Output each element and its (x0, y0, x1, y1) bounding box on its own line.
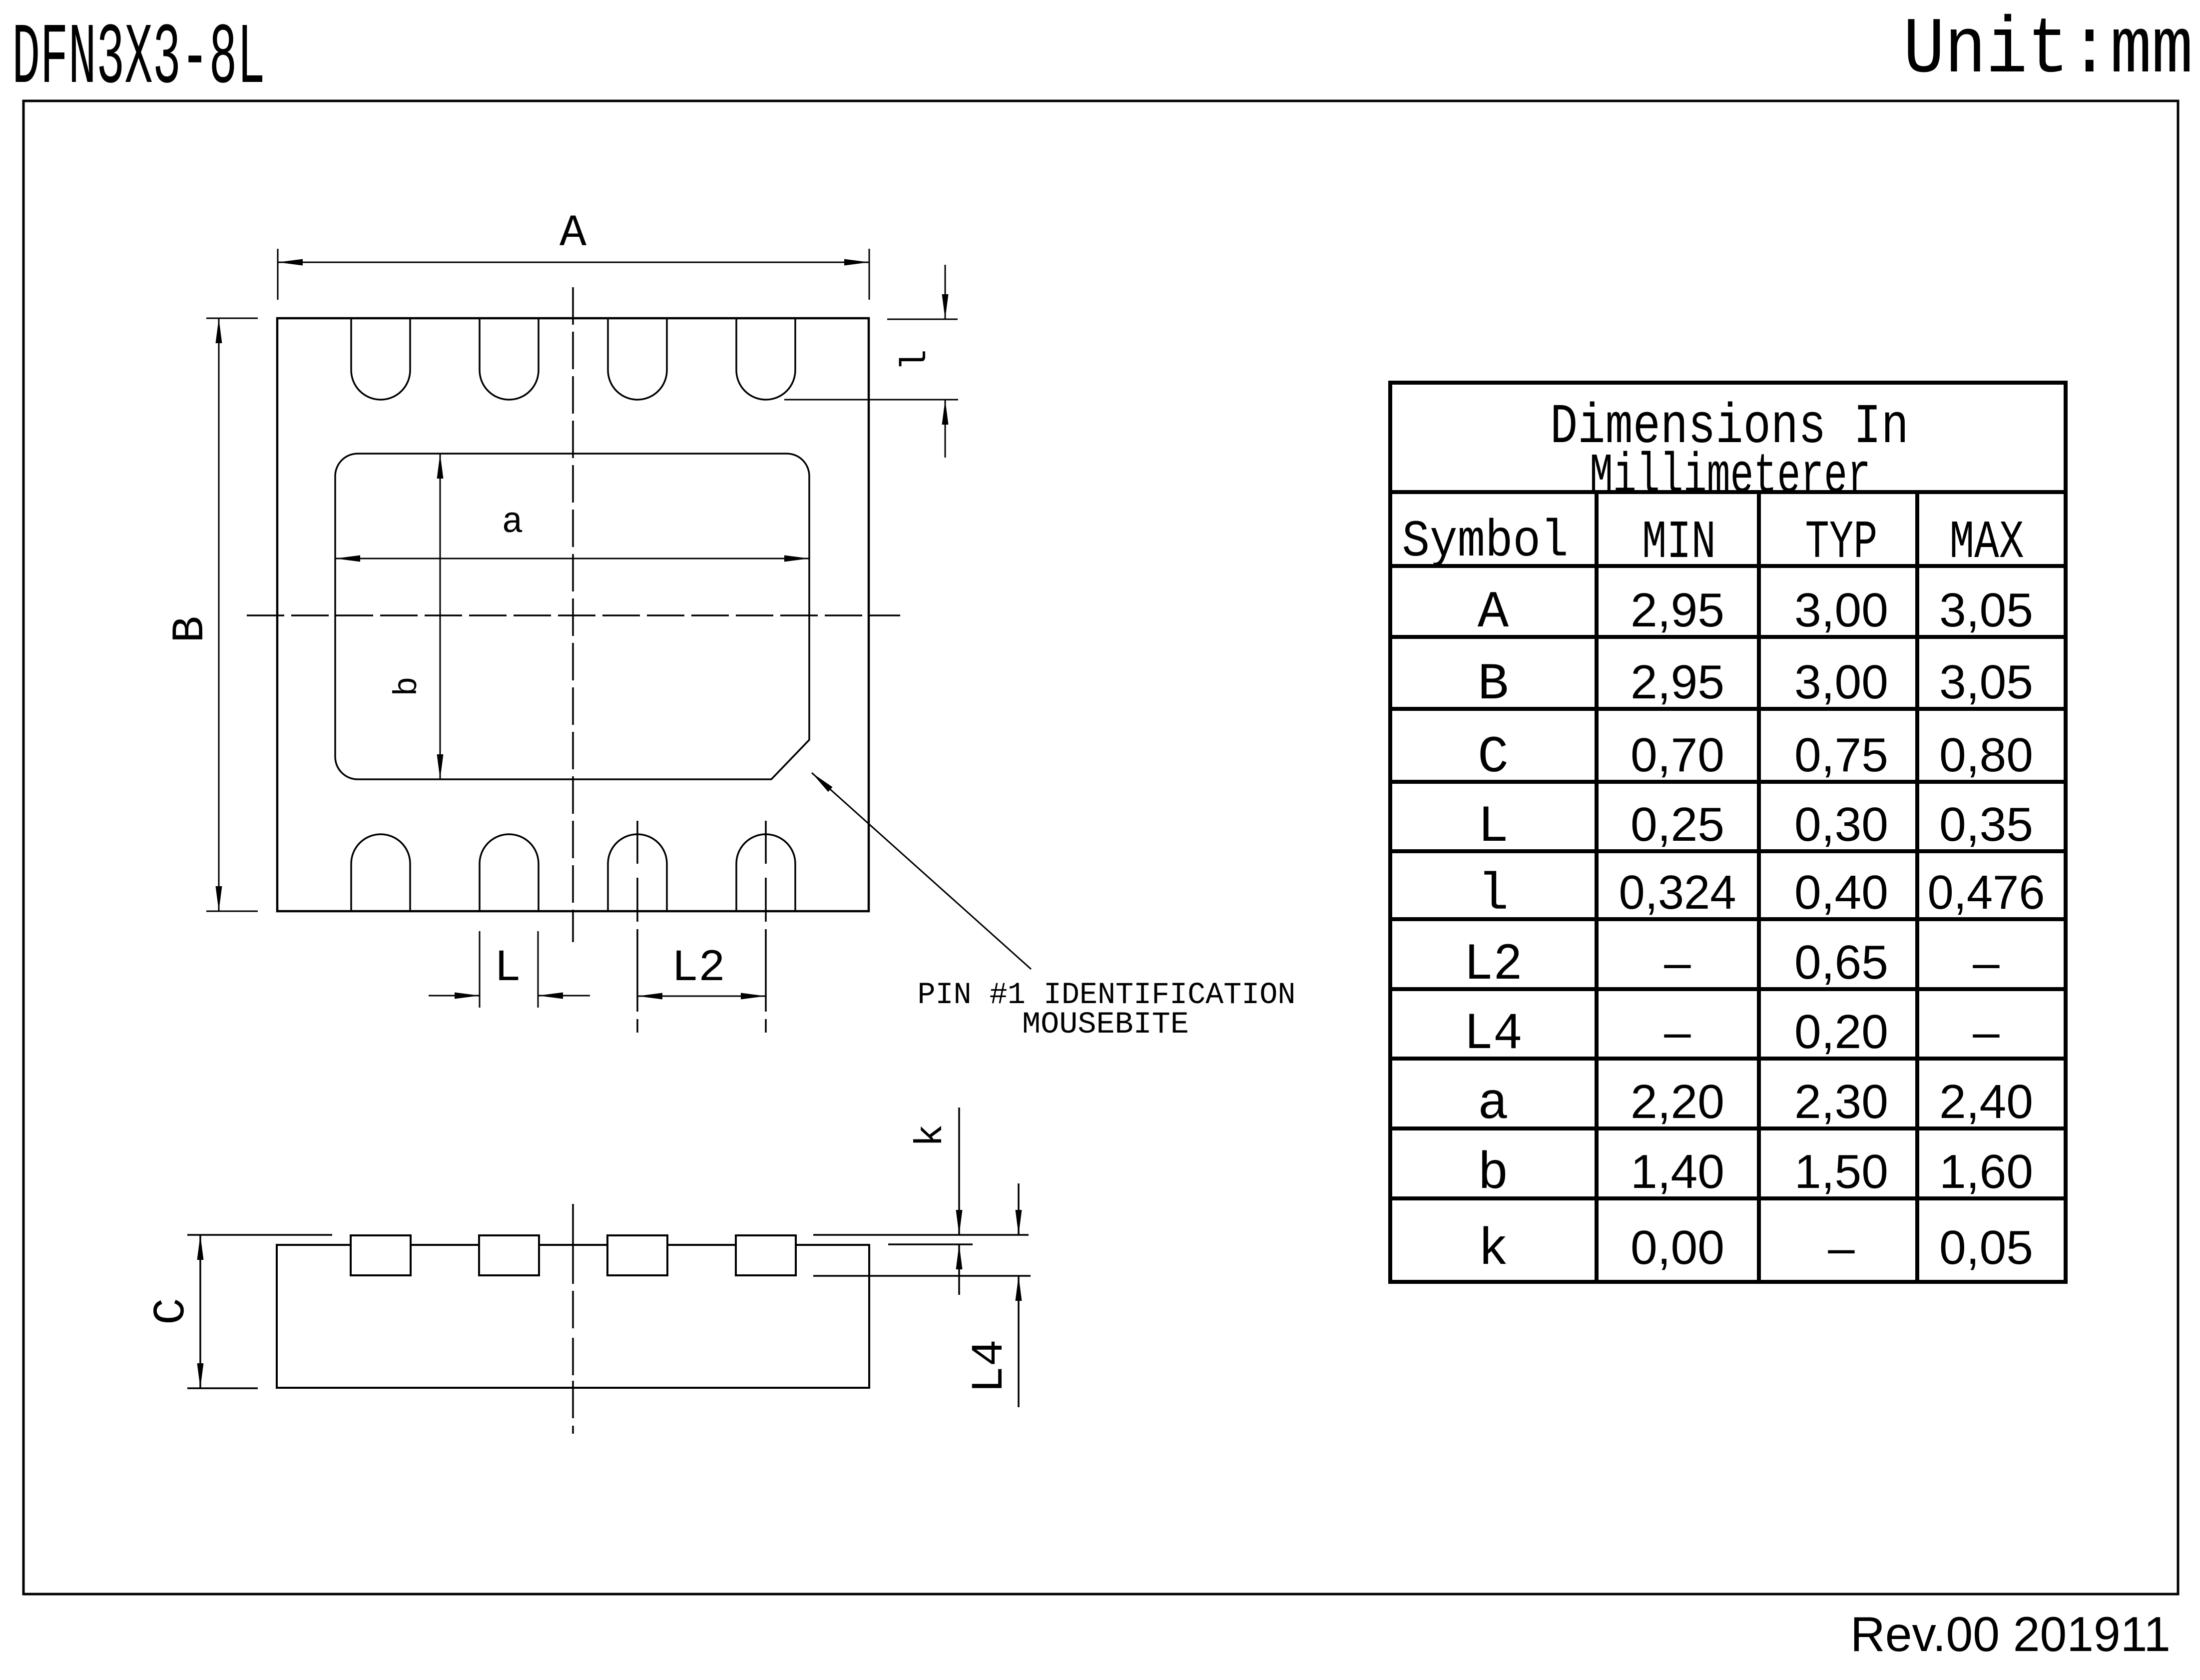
svg-text:k: k (1478, 1221, 1509, 1280)
svg-text:MOUSEBITE: MOUSEBITE (1022, 1008, 1189, 1042)
svg-text:–: – (1973, 1005, 2000, 1059)
svg-text:A: A (1478, 583, 1509, 642)
svg-text:0,00: 0,00 (1631, 1221, 1724, 1274)
svg-text:2,95: 2,95 (1631, 583, 1724, 637)
svg-text:l: l (895, 349, 936, 371)
svg-text:MIN: MIN (1642, 513, 1716, 573)
svg-text:–: – (1664, 1005, 1691, 1059)
svg-text:0,65: 0,65 (1794, 936, 1888, 989)
svg-text:0,70: 0,70 (1631, 728, 1724, 782)
svg-text:k: k (910, 1124, 953, 1147)
svg-text:l: l (1478, 866, 1509, 925)
svg-text:0,324: 0,324 (1619, 866, 1736, 919)
svg-text:L: L (494, 943, 521, 994)
svg-text:DFN3X3-8L: DFN3X3-8L (12, 10, 265, 108)
svg-text:A: A (559, 208, 586, 259)
svg-text:C: C (1478, 728, 1509, 787)
svg-text:3,00: 3,00 (1794, 583, 1888, 637)
svg-text:Millimeterer: Millimeterer (1590, 445, 1871, 509)
svg-text:TYP: TYP (1805, 513, 1878, 573)
svg-text:–: – (1973, 936, 2000, 989)
svg-text:Rev.00 201911: Rev.00 201911 (1850, 1607, 2171, 1662)
svg-text:–: – (1664, 936, 1691, 989)
svg-text:0,75: 0,75 (1794, 728, 1888, 782)
svg-text:0,30: 0,30 (1794, 798, 1888, 851)
svg-text:3,05: 3,05 (1939, 655, 2033, 709)
svg-text:1,40: 1,40 (1631, 1145, 1724, 1198)
svg-text:Symbol: Symbol (1402, 513, 1569, 571)
svg-text:Unit:mm: Unit:mm (1903, 5, 2193, 95)
svg-text:2,95: 2,95 (1631, 655, 1724, 709)
svg-text:3,00: 3,00 (1794, 655, 1888, 709)
svg-text:0,40: 0,40 (1794, 866, 1888, 919)
svg-text:3,05: 3,05 (1939, 583, 2033, 637)
svg-text:0,05: 0,05 (1939, 1221, 2033, 1274)
svg-text:–: – (1828, 1221, 1855, 1274)
svg-text:b: b (1478, 1145, 1509, 1204)
svg-text:2,20: 2,20 (1631, 1075, 1724, 1128)
svg-text:0,476: 0,476 (1928, 866, 2045, 919)
svg-text:L2: L2 (1464, 936, 1523, 995)
svg-text:1,50: 1,50 (1794, 1145, 1888, 1198)
svg-text:b: b (389, 676, 426, 696)
svg-text:2,40: 2,40 (1939, 1075, 2033, 1128)
svg-text:2,30: 2,30 (1794, 1075, 1888, 1128)
svg-text:B: B (165, 616, 216, 643)
svg-text:1,60: 1,60 (1939, 1145, 2033, 1198)
svg-text:0,80: 0,80 (1939, 728, 2033, 782)
svg-text:L4: L4 (1464, 1005, 1523, 1064)
svg-text:L4: L4 (965, 1339, 1016, 1393)
svg-text:a: a (1478, 1075, 1509, 1134)
svg-text:0,20: 0,20 (1794, 1005, 1888, 1059)
svg-text:B: B (1478, 655, 1509, 714)
svg-text:0,25: 0,25 (1631, 798, 1724, 851)
svg-text:L2: L2 (671, 943, 725, 994)
svg-text:MAX: MAX (1950, 513, 2024, 573)
svg-text:a: a (502, 502, 523, 543)
svg-text:0,35: 0,35 (1939, 798, 2033, 851)
svg-text:C: C (146, 1298, 197, 1325)
svg-text:L: L (1478, 798, 1509, 857)
